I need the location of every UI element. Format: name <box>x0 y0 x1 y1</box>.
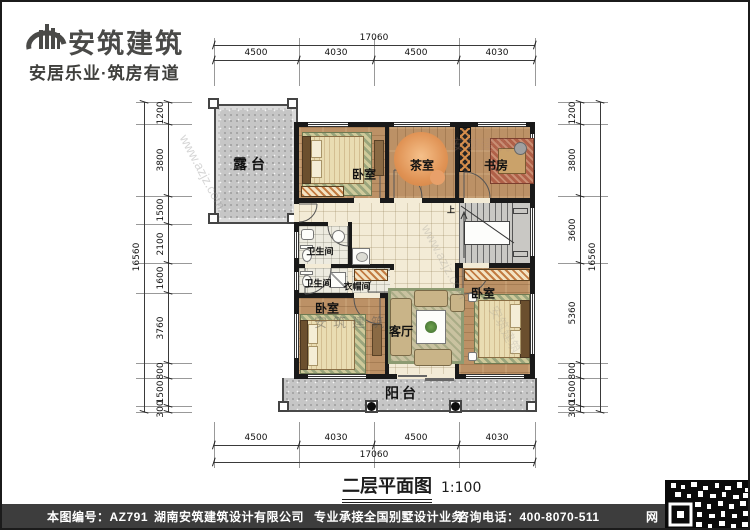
dimension-line <box>580 102 581 412</box>
footer-drawing-no: 本图编号：AZ791 <box>47 508 148 525</box>
dimension-annotations: 17060 4500 4030 4500 4030 4500 4030 4500… <box>2 2 750 530</box>
dim-value: 4500 <box>405 433 428 443</box>
dim-value: 1200 <box>568 102 578 125</box>
dim-value: 17060 <box>360 450 389 460</box>
dim-value: 300 <box>156 400 166 417</box>
dim-value: 4500 <box>245 433 268 443</box>
footer-company: 湖南安筑建筑设计有限公司 <box>154 508 304 525</box>
dimension-line <box>168 102 169 412</box>
dim-value: 4030 <box>325 433 348 443</box>
sheet-title-scale: 1:100 <box>441 480 481 496</box>
dim-value: 4500 <box>245 48 268 58</box>
dim-value: 16560 <box>588 243 598 272</box>
dim-value: 300 <box>568 400 578 417</box>
sheet-title: 二层平面图 1:100 <box>342 472 542 503</box>
dim-value: 16560 <box>132 243 142 272</box>
dim-value: 4030 <box>325 48 348 58</box>
dim-value: 3760 <box>156 317 166 340</box>
drawing-sheet: 安筑建筑 安居乐业·筑房有道 <box>0 0 750 530</box>
dim-value: 4030 <box>486 48 509 58</box>
dim-value: 800 <box>568 362 578 379</box>
footer-web-label: 网 <box>646 508 659 525</box>
dim-value: 4500 <box>405 48 428 58</box>
dim-value: 3800 <box>568 149 578 172</box>
dim-tick <box>596 410 605 414</box>
dim-value: 17060 <box>360 33 389 43</box>
dim-value: 2100 <box>156 233 166 256</box>
dim-value: 4030 <box>486 433 509 443</box>
qr-code <box>665 480 750 530</box>
dimension-line <box>600 102 601 412</box>
dim-value: 3800 <box>156 149 166 172</box>
dimension-line <box>144 102 145 412</box>
dim-value: 1500 <box>156 199 166 222</box>
dim-tick <box>140 410 149 414</box>
sheet-title-text: 二层平面图 <box>342 472 432 503</box>
footer-bar: 本图编号：AZ791 湖南安筑建筑设计有限公司 专业承接全国别墅设计业务 咨询电… <box>2 504 750 528</box>
footer-service: 专业承接全国别墅设计业务 <box>314 508 464 525</box>
dim-value: 1600 <box>156 267 166 290</box>
dim-value: 800 <box>156 362 166 379</box>
dimension-line <box>214 45 535 46</box>
dim-value: 1200 <box>156 102 166 125</box>
footer-phone: 咨询电话：400-8070-511 <box>457 508 600 525</box>
dimension-line <box>214 462 535 463</box>
dim-value: 5360 <box>568 302 578 325</box>
dim-value: 3600 <box>568 219 578 242</box>
